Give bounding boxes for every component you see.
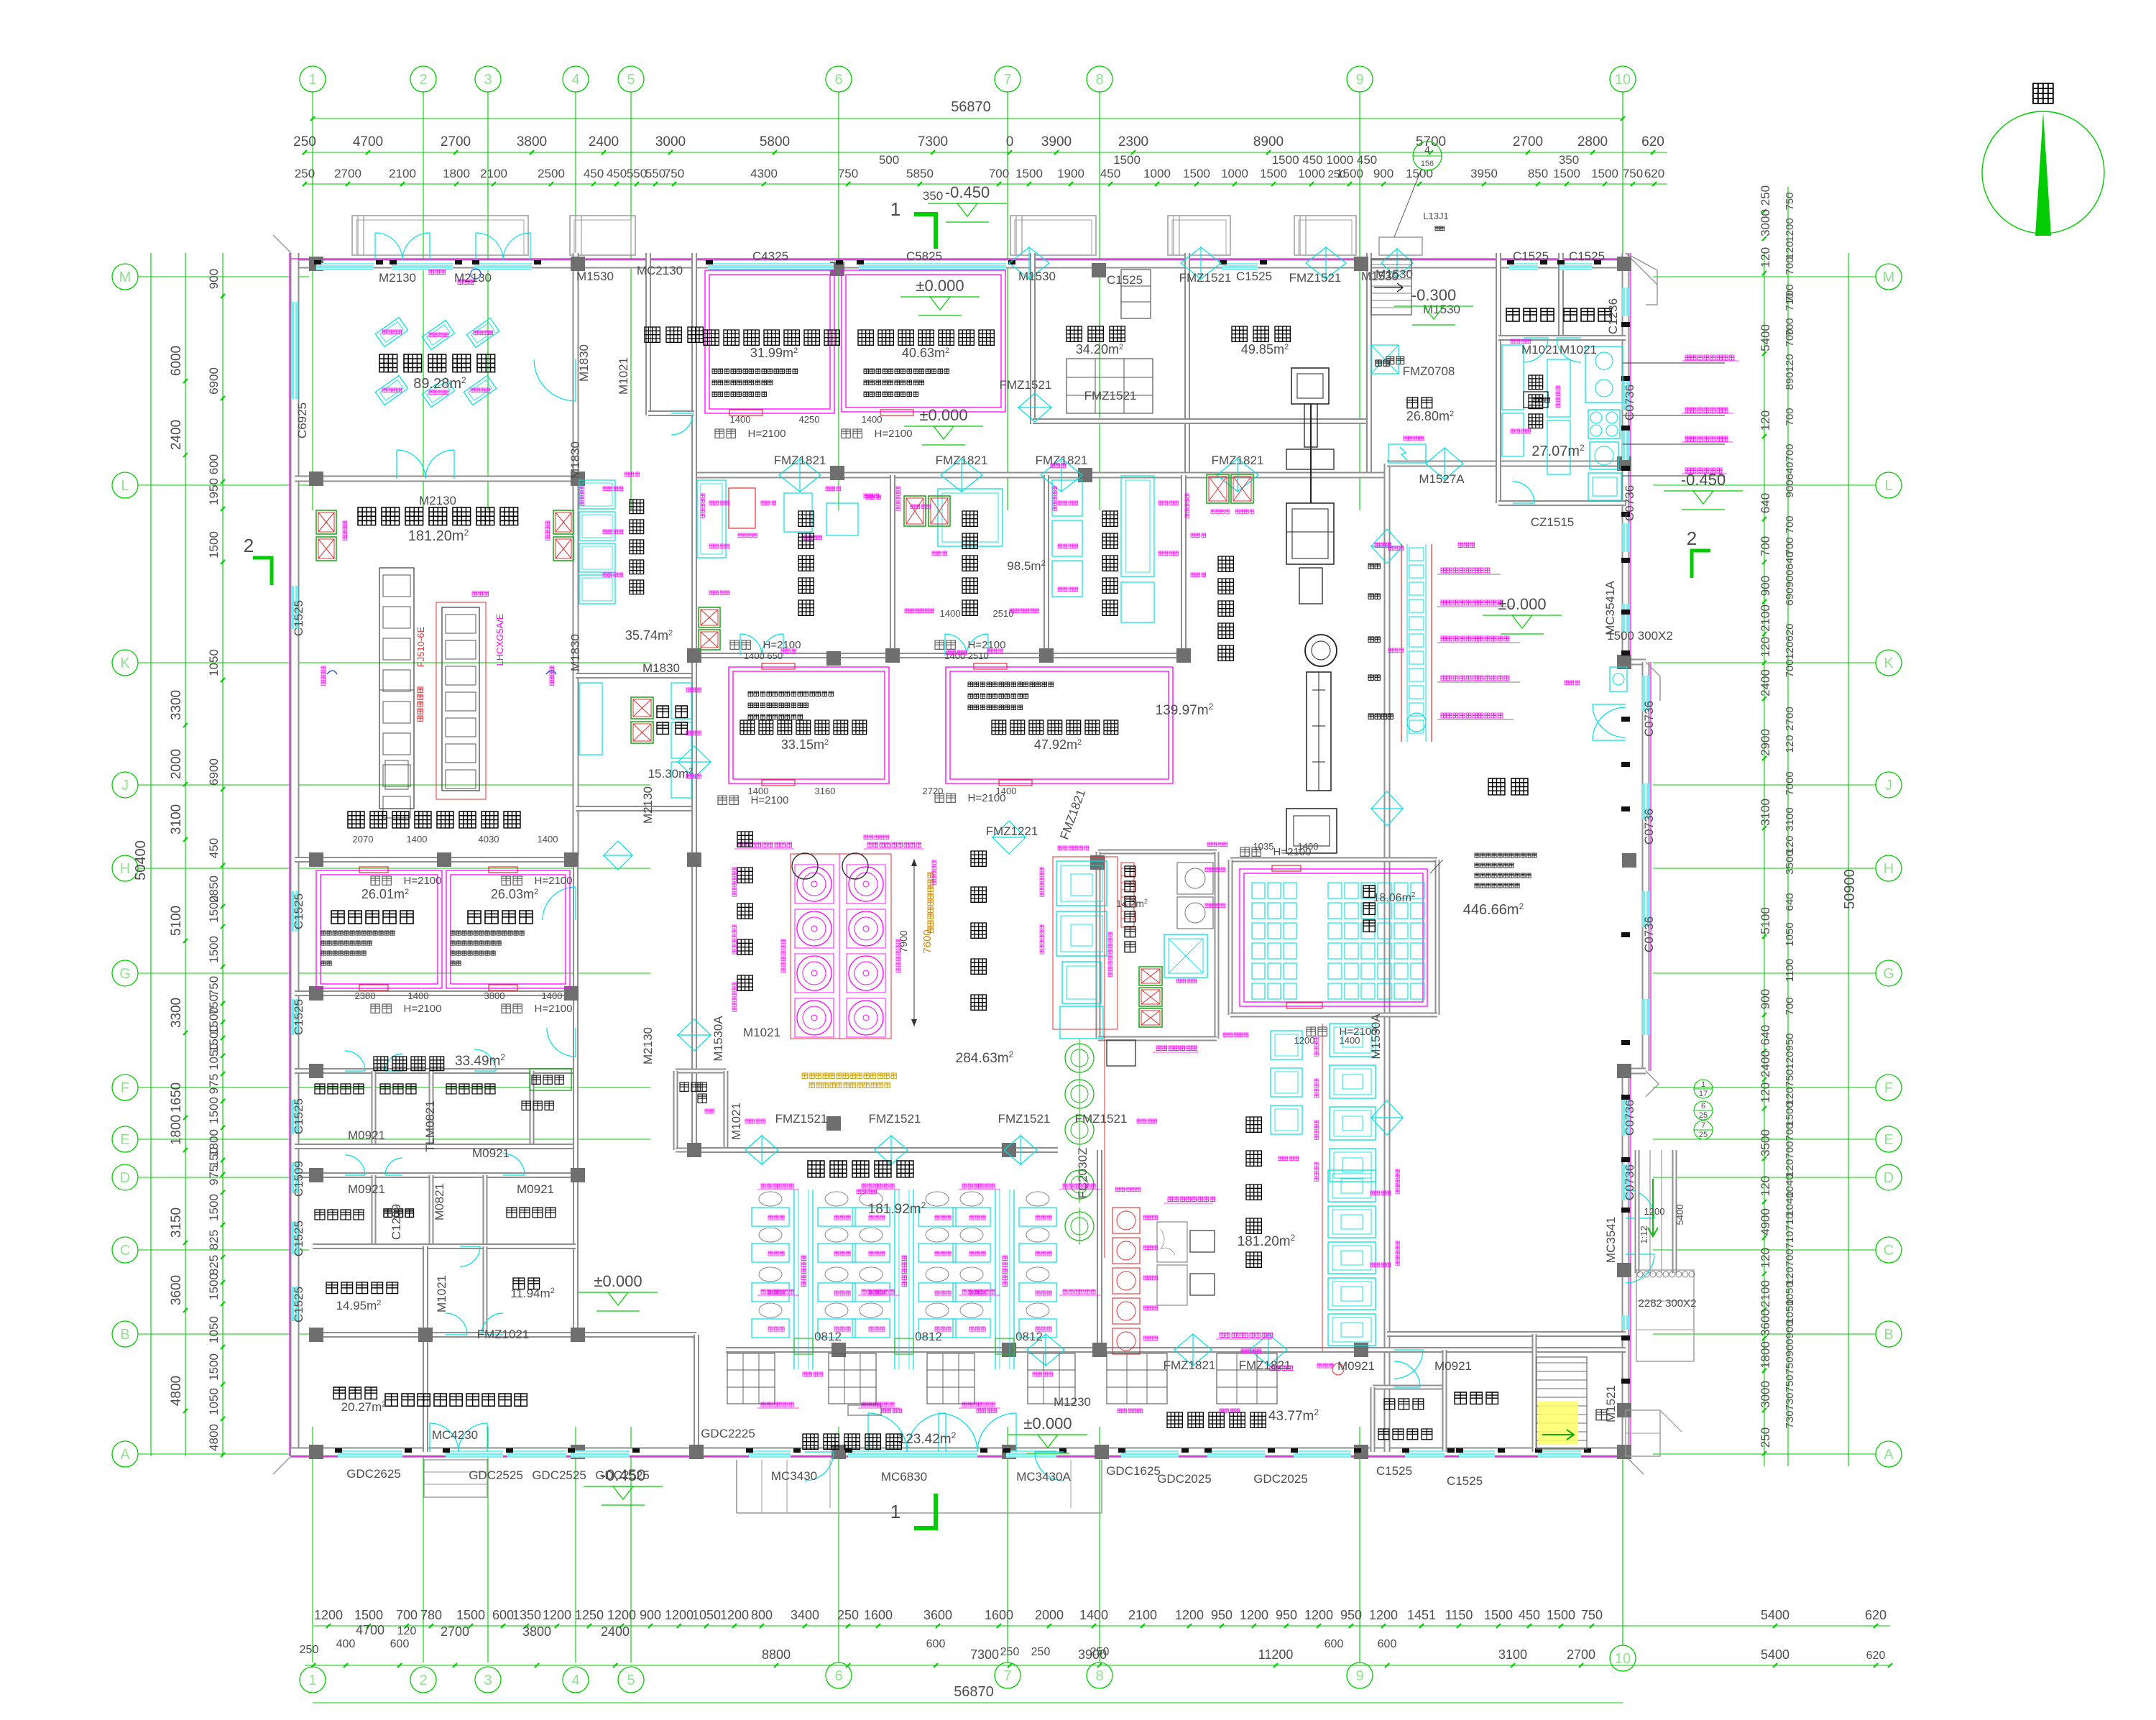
svg-text:M0921: M0921 — [348, 1182, 385, 1196]
svg-text:G: G — [119, 966, 131, 982]
svg-text:700: 700 — [1759, 536, 1772, 556]
svg-text:2700: 2700 — [1784, 707, 1796, 730]
svg-text:750: 750 — [1784, 1356, 1796, 1374]
svg-text:250: 250 — [837, 1608, 859, 1622]
svg-text:H=2100: H=2100 — [535, 875, 573, 887]
svg-text:TLM0821: TLM0821 — [423, 1100, 437, 1152]
svg-text:C1525: C1525 — [292, 1287, 305, 1323]
svg-text:1400: 1400 — [542, 990, 563, 1001]
svg-text:1500: 1500 — [207, 1353, 221, 1381]
svg-text:139.97m2: 139.97m2 — [1156, 702, 1214, 718]
svg-text:550: 550 — [627, 167, 647, 180]
svg-text:1000: 1000 — [1221, 167, 1248, 180]
svg-text:M1830: M1830 — [642, 661, 680, 675]
svg-text:1:12: 1:12 — [1639, 1225, 1649, 1243]
svg-text:M1021: M1021 — [617, 357, 630, 395]
svg-text:3900: 3900 — [1041, 134, 1072, 150]
svg-text:C0736: C0736 — [1623, 385, 1636, 420]
svg-text:H=2100: H=2100 — [763, 639, 801, 651]
svg-text:750: 750 — [207, 995, 221, 1015]
svg-text:3800: 3800 — [522, 1624, 551, 1639]
svg-text:450: 450 — [584, 167, 604, 180]
svg-text:4: 4 — [571, 1673, 579, 1688]
svg-text:150: 150 — [207, 1147, 221, 1167]
svg-text:B: B — [120, 1327, 129, 1343]
svg-text:600: 600 — [1325, 1638, 1344, 1650]
svg-text:780: 780 — [420, 1608, 442, 1622]
svg-text:M1530A: M1530A — [1369, 1013, 1383, 1059]
svg-text:MC6830: MC6830 — [881, 1470, 927, 1484]
svg-text:2: 2 — [419, 1673, 427, 1688]
svg-text:M0921: M0921 — [517, 1182, 554, 1196]
svg-text:40.63m2: 40.63m2 — [902, 346, 949, 360]
svg-text:1050: 1050 — [1784, 1300, 1796, 1323]
svg-text:FMZ1221: FMZ1221 — [986, 824, 1038, 838]
svg-text:-0.450: -0.450 — [601, 1466, 645, 1484]
svg-text:CZ1515: CZ1515 — [1531, 515, 1574, 529]
svg-text:M: M — [119, 270, 132, 285]
svg-text:181.20m2: 181.20m2 — [1238, 1233, 1296, 1249]
svg-text:1650: 1650 — [169, 1082, 184, 1113]
svg-text:FMZ1521: FMZ1521 — [1179, 271, 1232, 285]
svg-text:620: 620 — [1641, 134, 1664, 150]
svg-text:8900: 8900 — [1253, 134, 1284, 150]
svg-text:900: 900 — [1784, 479, 1796, 497]
svg-text:1350: 1350 — [512, 1608, 541, 1622]
svg-text:±0.000: ±0.000 — [1498, 595, 1546, 613]
svg-text:1500: 1500 — [1260, 167, 1287, 180]
svg-text:FMZ1521: FMZ1521 — [998, 1112, 1051, 1126]
svg-text:D: D — [120, 1170, 130, 1186]
svg-text:900: 900 — [1373, 167, 1393, 180]
svg-text:M0821: M0821 — [433, 1183, 446, 1220]
svg-text:M2130: M2130 — [454, 271, 492, 285]
svg-text:690: 690 — [1784, 587, 1796, 605]
svg-text:7: 7 — [1003, 72, 1011, 88]
svg-text:2100: 2100 — [1759, 604, 1772, 632]
svg-text:C6925: C6925 — [295, 403, 309, 438]
svg-text:25: 25 — [1699, 1131, 1708, 1139]
svg-text:FMZ1521: FMZ1521 — [775, 1112, 828, 1126]
svg-text:600: 600 — [390, 1638, 410, 1650]
svg-text:181.92m2: 181.92m2 — [868, 1200, 926, 1217]
svg-text:GDC2025: GDC2025 — [1253, 1472, 1308, 1486]
svg-text:GDC2025: GDC2025 — [1157, 1472, 1212, 1486]
svg-text:C1525: C1525 — [1513, 249, 1549, 263]
svg-text:GDC2525: GDC2525 — [532, 1468, 586, 1482]
svg-text:C1525: C1525 — [292, 600, 305, 636]
svg-text:250: 250 — [1031, 1646, 1051, 1658]
svg-text:M1527A: M1527A — [1419, 472, 1465, 486]
svg-text:120: 120 — [1759, 1176, 1772, 1196]
svg-text:250: 250 — [1000, 1646, 1020, 1658]
svg-text:1000: 1000 — [1143, 167, 1171, 180]
svg-text:850: 850 — [1528, 167, 1548, 180]
svg-text:1451: 1451 — [1407, 1608, 1436, 1622]
svg-text:3150: 3150 — [169, 1208, 184, 1238]
svg-text:350: 350 — [923, 189, 943, 203]
svg-text:120: 120 — [1784, 1159, 1796, 1177]
svg-text:G: G — [1883, 966, 1894, 982]
svg-text:A: A — [1884, 1447, 1894, 1463]
svg-text:47.92m2: 47.92m2 — [1034, 737, 1082, 752]
svg-text:1950: 1950 — [207, 478, 221, 505]
svg-text:9: 9 — [1355, 1668, 1363, 1684]
svg-text:6900: 6900 — [207, 758, 221, 786]
svg-text:3300: 3300 — [169, 690, 184, 720]
svg-text:FMZ1821: FMZ1821 — [774, 454, 826, 467]
svg-text:26.01m2: 26.01m2 — [361, 887, 409, 901]
svg-text:7300: 7300 — [970, 1647, 999, 1662]
svg-text:750: 750 — [1623, 167, 1643, 180]
svg-text:18.06m2: 18.06m2 — [1373, 891, 1416, 904]
svg-text:620: 620 — [1644, 167, 1664, 180]
svg-text:H=2100: H=2100 — [535, 1003, 573, 1015]
svg-text:950: 950 — [1784, 1033, 1796, 1051]
svg-text:M0921: M0921 — [1337, 1359, 1375, 1373]
svg-text:6: 6 — [834, 1668, 842, 1684]
svg-text:120: 120 — [397, 1625, 417, 1637]
svg-text:H=2100: H=2100 — [748, 428, 786, 440]
svg-text:56870: 56870 — [951, 99, 991, 115]
svg-text:900: 900 — [1759, 989, 1772, 1009]
svg-text:700: 700 — [1784, 1141, 1796, 1159]
svg-text:4800: 4800 — [169, 1376, 184, 1406]
svg-text:700: 700 — [1784, 284, 1796, 302]
svg-text:640: 640 — [1759, 1025, 1772, 1045]
svg-text:2282 300X2: 2282 300X2 — [1639, 1297, 1697, 1310]
svg-text:0812: 0812 — [915, 1330, 942, 1343]
svg-text:350: 350 — [1559, 153, 1579, 167]
svg-text:LHCXG5A/E: LHCXG5A/E — [494, 613, 505, 666]
svg-text:50900: 50900 — [1842, 869, 1858, 909]
svg-text:11.94m2: 11.94m2 — [510, 1287, 555, 1300]
svg-text:900: 900 — [640, 1608, 661, 1622]
svg-text:123.42m2: 123.42m2 — [898, 1430, 957, 1447]
svg-text:0812: 0812 — [1015, 1330, 1043, 1343]
svg-text:FMZ0708: FMZ0708 — [1403, 364, 1455, 378]
svg-text:F: F — [1884, 1080, 1893, 1096]
svg-text:1500: 1500 — [1547, 1608, 1575, 1622]
svg-text:50400: 50400 — [133, 840, 149, 880]
svg-text:120: 120 — [1784, 835, 1796, 853]
svg-text:C4325: C4325 — [752, 249, 788, 263]
svg-text:1500: 1500 — [207, 896, 221, 923]
svg-text:D: D — [1884, 1170, 1894, 1186]
svg-text:750: 750 — [838, 167, 858, 180]
svg-text:120: 120 — [1759, 1248, 1772, 1268]
svg-text:M: M — [1883, 270, 1895, 285]
svg-text:750: 750 — [664, 167, 684, 180]
svg-text:120: 120 — [1784, 241, 1796, 259]
svg-text:FMZ1521: FMZ1521 — [869, 1112, 921, 1126]
svg-text:5: 5 — [627, 1673, 635, 1688]
svg-text:1200: 1200 — [1369, 1608, 1398, 1622]
svg-text:1000: 1000 — [1298, 167, 1325, 180]
svg-text:450: 450 — [1519, 1608, 1540, 1622]
svg-text:4: 4 — [1424, 144, 1430, 155]
svg-text:M0921: M0921 — [472, 1146, 510, 1160]
svg-text:6: 6 — [834, 72, 842, 88]
svg-text:C: C — [120, 1243, 130, 1259]
svg-text:710: 710 — [1784, 1231, 1796, 1248]
svg-text:4250: 4250 — [799, 414, 820, 425]
svg-text:1200: 1200 — [1304, 1608, 1333, 1622]
svg-text:5400: 5400 — [1761, 1608, 1789, 1622]
svg-text:L: L — [1884, 478, 1892, 494]
svg-text:8: 8 — [1095, 1668, 1103, 1684]
svg-text:3800: 3800 — [517, 134, 547, 150]
svg-text:250: 250 — [295, 167, 315, 180]
svg-text:4: 4 — [571, 72, 579, 88]
svg-text:B: B — [1884, 1327, 1893, 1343]
svg-text:0: 0 — [1006, 134, 1014, 150]
svg-text:1200: 1200 — [607, 1608, 636, 1622]
svg-text:1500 300X2: 1500 300X2 — [1607, 629, 1673, 643]
svg-text:120: 120 — [1759, 1082, 1772, 1103]
svg-text:2100: 2100 — [1759, 1280, 1772, 1307]
svg-text:7300: 7300 — [918, 134, 948, 150]
svg-text:1050: 1050 — [207, 1316, 221, 1343]
svg-text:K: K — [1884, 656, 1894, 671]
svg-text:900: 900 — [1784, 1338, 1796, 1356]
svg-text:1500: 1500 — [207, 531, 221, 558]
svg-text:250: 250 — [1759, 185, 1772, 206]
svg-text:33.15m2: 33.15m2 — [781, 737, 829, 752]
svg-text:M1521: M1521 — [1604, 1385, 1618, 1422]
svg-text:2510: 2510 — [993, 608, 1014, 619]
svg-text:98.5m2: 98.5m2 — [1007, 559, 1045, 573]
svg-text:2800: 2800 — [1577, 134, 1608, 150]
svg-text:1500: 1500 — [354, 1608, 383, 1622]
svg-text:±0.000: ±0.000 — [916, 277, 964, 295]
svg-text:FMZ1821: FMZ1821 — [936, 454, 988, 467]
svg-text:C0736: C0736 — [1623, 1164, 1636, 1200]
svg-text:FMZ1821: FMZ1821 — [1212, 454, 1264, 467]
svg-text:49.85m2: 49.85m2 — [1241, 342, 1289, 357]
svg-text:500: 500 — [879, 153, 899, 167]
svg-text:750: 750 — [1784, 1374, 1796, 1392]
svg-text:M1021: M1021 — [729, 1103, 743, 1140]
svg-text:550: 550 — [645, 167, 665, 180]
svg-text:1200: 1200 — [1644, 1206, 1665, 1217]
svg-text:4300: 4300 — [750, 167, 778, 180]
svg-text:2700: 2700 — [441, 134, 471, 150]
svg-text:2700: 2700 — [1513, 134, 1543, 150]
svg-text:14.95m2: 14.95m2 — [336, 1299, 382, 1312]
svg-text:730: 730 — [1784, 1392, 1796, 1410]
svg-text:1500 450 1000 450: 1500 450 1000 450 — [1272, 153, 1378, 167]
svg-text:7000: 7000 — [1784, 771, 1796, 795]
svg-text:5850: 5850 — [906, 167, 934, 180]
svg-text:C0736: C0736 — [1642, 916, 1656, 952]
svg-text:9: 9 — [1355, 72, 1363, 88]
svg-text:6000: 6000 — [169, 346, 184, 376]
svg-text:1800: 1800 — [443, 167, 470, 180]
svg-text:8800: 8800 — [762, 1647, 791, 1662]
svg-text:3160: 3160 — [815, 786, 836, 796]
svg-text:2070: 2070 — [353, 834, 374, 845]
svg-text:1500: 1500 — [1591, 167, 1618, 180]
svg-text:10: 10 — [1615, 1651, 1631, 1667]
svg-text:M2130: M2130 — [641, 1027, 655, 1064]
svg-text:17: 17 — [1699, 1090, 1708, 1098]
svg-text:1400: 1400 — [1340, 1035, 1360, 1046]
svg-text:1500: 1500 — [1015, 167, 1043, 180]
svg-text:2100: 2100 — [1128, 1608, 1157, 1622]
svg-text:F: F — [121, 1080, 129, 1096]
svg-text:950: 950 — [1211, 1608, 1233, 1622]
svg-text:FMZ1021: FMZ1021 — [477, 1328, 530, 1341]
svg-text:±0.000: ±0.000 — [919, 406, 967, 424]
svg-text:640: 640 — [1759, 493, 1772, 513]
svg-text:620: 620 — [1866, 1650, 1886, 1662]
svg-text:GDC2525: GDC2525 — [469, 1468, 523, 1482]
svg-text:7900: 7900 — [898, 930, 909, 952]
svg-text:700: 700 — [989, 167, 1009, 180]
svg-text:2700: 2700 — [334, 167, 361, 180]
svg-text:3300: 3300 — [169, 998, 184, 1028]
svg-text:M1230: M1230 — [1054, 1395, 1091, 1409]
svg-text:FMZ1521: FMZ1521 — [1289, 271, 1342, 285]
svg-text:1400: 1400 — [538, 834, 558, 845]
svg-text:1400: 1400 — [408, 990, 429, 1001]
svg-text:H: H — [120, 861, 130, 877]
svg-text:975: 975 — [207, 1074, 221, 1094]
svg-text:900: 900 — [207, 269, 221, 289]
svg-text:450: 450 — [207, 838, 221, 858]
svg-text:3900: 3900 — [1078, 1647, 1107, 1662]
svg-text:450: 450 — [1100, 167, 1120, 180]
svg-text:6: 6 — [1701, 1102, 1705, 1110]
svg-text:7600: 7600 — [921, 929, 934, 953]
svg-text:284.63m2: 284.63m2 — [956, 1049, 1014, 1066]
svg-text:620: 620 — [1784, 623, 1796, 641]
svg-text:C0736: C0736 — [1642, 701, 1656, 737]
svg-text:890: 890 — [1784, 372, 1796, 390]
svg-text:700: 700 — [1784, 1248, 1796, 1266]
svg-text:C: C — [1884, 1243, 1894, 1259]
svg-text:400: 400 — [336, 1638, 356, 1650]
svg-text:15.30m2: 15.30m2 — [648, 767, 694, 781]
svg-text:620: 620 — [1865, 1608, 1886, 1622]
svg-text:640: 640 — [1784, 893, 1796, 911]
svg-text:2100: 2100 — [480, 167, 507, 180]
svg-text:3000: 3000 — [1759, 209, 1772, 236]
svg-text:1800: 1800 — [1759, 1341, 1772, 1369]
svg-text:5: 5 — [627, 72, 635, 88]
svg-text:825: 825 — [207, 1230, 221, 1250]
svg-text:2700: 2700 — [441, 1624, 469, 1639]
svg-text:4700: 4700 — [356, 1623, 384, 1637]
svg-text:6900: 6900 — [207, 367, 221, 395]
svg-text:2000: 2000 — [1035, 1608, 1064, 1622]
svg-text:1500: 1500 — [207, 1194, 221, 1221]
svg-text:1500: 1500 — [1336, 167, 1363, 180]
svg-text:1600: 1600 — [985, 1608, 1013, 1622]
svg-text:C1525: C1525 — [1376, 1464, 1412, 1478]
svg-text:120: 120 — [1784, 1087, 1796, 1105]
svg-text:2100: 2100 — [389, 167, 416, 180]
svg-text:446.66m2: 446.66m2 — [1463, 901, 1524, 918]
svg-text:3100: 3100 — [1759, 799, 1772, 826]
svg-text:3500: 3500 — [1759, 1129, 1772, 1156]
svg-text:1400: 1400 — [1079, 1608, 1108, 1622]
svg-text:FMZ1521: FMZ1521 — [1084, 389, 1137, 403]
svg-text:2720: 2720 — [923, 786, 944, 796]
svg-text:3100: 3100 — [169, 804, 184, 834]
svg-text:640: 640 — [1784, 461, 1796, 479]
svg-text:C0736: C0736 — [1623, 485, 1636, 521]
svg-text:25: 25 — [1699, 1111, 1708, 1120]
svg-text:250: 250 — [300, 1644, 319, 1656]
svg-text:700: 700 — [1784, 659, 1796, 677]
svg-text:14.2m2: 14.2m2 — [1116, 898, 1148, 909]
svg-text:M1021: M1021 — [743, 1026, 780, 1039]
svg-text:3: 3 — [484, 72, 492, 88]
svg-text:5100: 5100 — [169, 906, 184, 936]
svg-text:750: 750 — [1581, 1608, 1603, 1622]
svg-text:1050: 1050 — [692, 1608, 721, 1622]
svg-text:3000: 3000 — [655, 134, 686, 150]
svg-text:C1525: C1525 — [1447, 1474, 1483, 1488]
svg-text:H=2100: H=2100 — [875, 428, 913, 440]
svg-text:H=2100: H=2100 — [404, 875, 442, 887]
svg-text:1: 1 — [890, 1501, 900, 1522]
svg-text:700: 700 — [1784, 515, 1796, 533]
svg-text:1: 1 — [308, 72, 316, 88]
svg-text:43.77m2: 43.77m2 — [1268, 1407, 1319, 1424]
svg-text:1200: 1200 — [720, 1608, 749, 1622]
svg-text:3000: 3000 — [1759, 1381, 1772, 1408]
svg-text:1250: 1250 — [575, 1608, 604, 1622]
svg-text:750: 750 — [207, 976, 221, 996]
svg-text:C1525: C1525 — [292, 1098, 305, 1134]
svg-text:600: 600 — [1378, 1638, 1397, 1650]
svg-text:1050: 1050 — [1784, 922, 1796, 946]
svg-text:1500: 1500 — [207, 1097, 221, 1124]
svg-text:700: 700 — [1784, 408, 1796, 426]
svg-text:1040: 1040 — [1784, 1192, 1796, 1215]
svg-text:34.20m2: 34.20m2 — [1076, 342, 1123, 357]
svg-text:FC2030Z: FC2030Z — [1076, 1148, 1089, 1199]
svg-text:3950: 3950 — [1470, 167, 1498, 180]
svg-text:730: 730 — [1784, 1410, 1796, 1428]
svg-text:10: 10 — [1615, 72, 1631, 88]
svg-text:1500: 1500 — [207, 1273, 221, 1300]
svg-text:181.20m2: 181.20m2 — [408, 528, 469, 544]
svg-text:GDC2625: GDC2625 — [346, 1467, 401, 1481]
svg-text:FMZ1821: FMZ1821 — [1164, 1358, 1216, 1372]
svg-text:C5825: C5825 — [906, 249, 942, 263]
svg-text:MC3541A: MC3541A — [1603, 581, 1617, 635]
svg-text:5400: 5400 — [1759, 324, 1772, 351]
svg-text:M1830: M1830 — [577, 344, 591, 382]
svg-text:120: 120 — [1759, 637, 1772, 657]
svg-text:M0921: M0921 — [348, 1128, 385, 1142]
svg-text:4030: 4030 — [479, 834, 499, 845]
svg-text:M1830: M1830 — [568, 441, 582, 479]
svg-text:1400: 1400 — [748, 786, 769, 796]
svg-text:1: 1 — [308, 1673, 316, 1688]
svg-text:1050: 1050 — [207, 1388, 221, 1415]
svg-text:M1021: M1021 — [1521, 343, 1559, 357]
svg-text:4800: 4800 — [207, 1424, 221, 1451]
svg-text:J: J — [1885, 778, 1892, 794]
svg-text:20.27m2: 20.27m2 — [341, 1400, 387, 1414]
svg-text:L13J1: L13J1 — [1423, 211, 1448, 221]
svg-text:1200: 1200 — [543, 1608, 571, 1622]
